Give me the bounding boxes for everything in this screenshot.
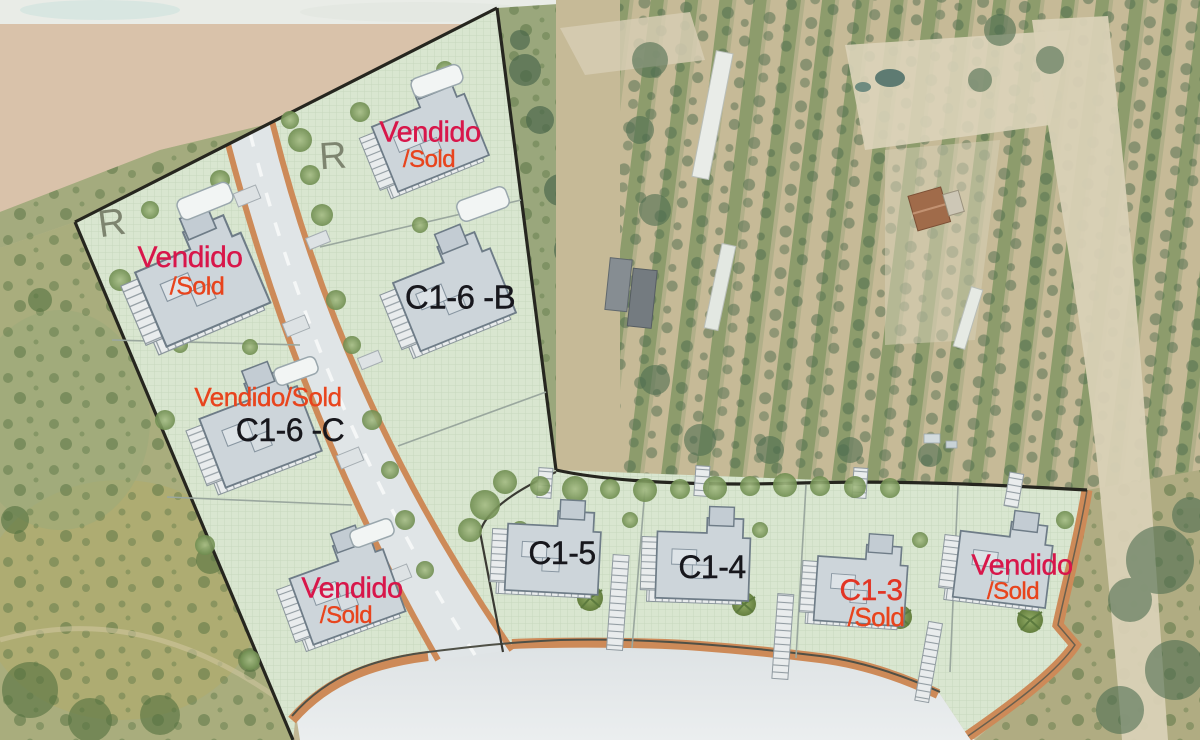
- plot-c16c-code: C1-6 -C: [236, 414, 345, 446]
- plot-top-status2: /Sold: [403, 148, 455, 172]
- plot-c13-status2: /Sold: [848, 604, 905, 630]
- plot-c14-code: C1-4: [678, 551, 745, 583]
- plot-topleft-status: Vendido: [138, 243, 243, 273]
- plot-bottomleft-status2: /Sold: [320, 604, 372, 628]
- pond: [875, 69, 905, 87]
- site-plan-screenshot: R R Vendido /Sold Vendido /Sold C1-6 -B …: [0, 0, 1200, 740]
- handwritten-r-mark: R: [95, 201, 128, 247]
- plot-right-status: Vendido: [971, 552, 1072, 581]
- aerial-site-plan-graphic: [0, 0, 1200, 740]
- plot-bottomleft-status: Vendido: [301, 575, 402, 604]
- plot-topleft-status2: /Sold: [170, 275, 224, 300]
- plot-c16b-code: C1-6 -B: [405, 281, 515, 314]
- plot-right-status2: /Sold: [987, 580, 1039, 604]
- plot-top-status: Vendido: [379, 119, 480, 148]
- handwritten-r-mark: R: [318, 135, 348, 180]
- plot-c15-code: C1-5: [528, 537, 595, 569]
- plot-c16c-status: Vendido/Sold: [194, 384, 341, 410]
